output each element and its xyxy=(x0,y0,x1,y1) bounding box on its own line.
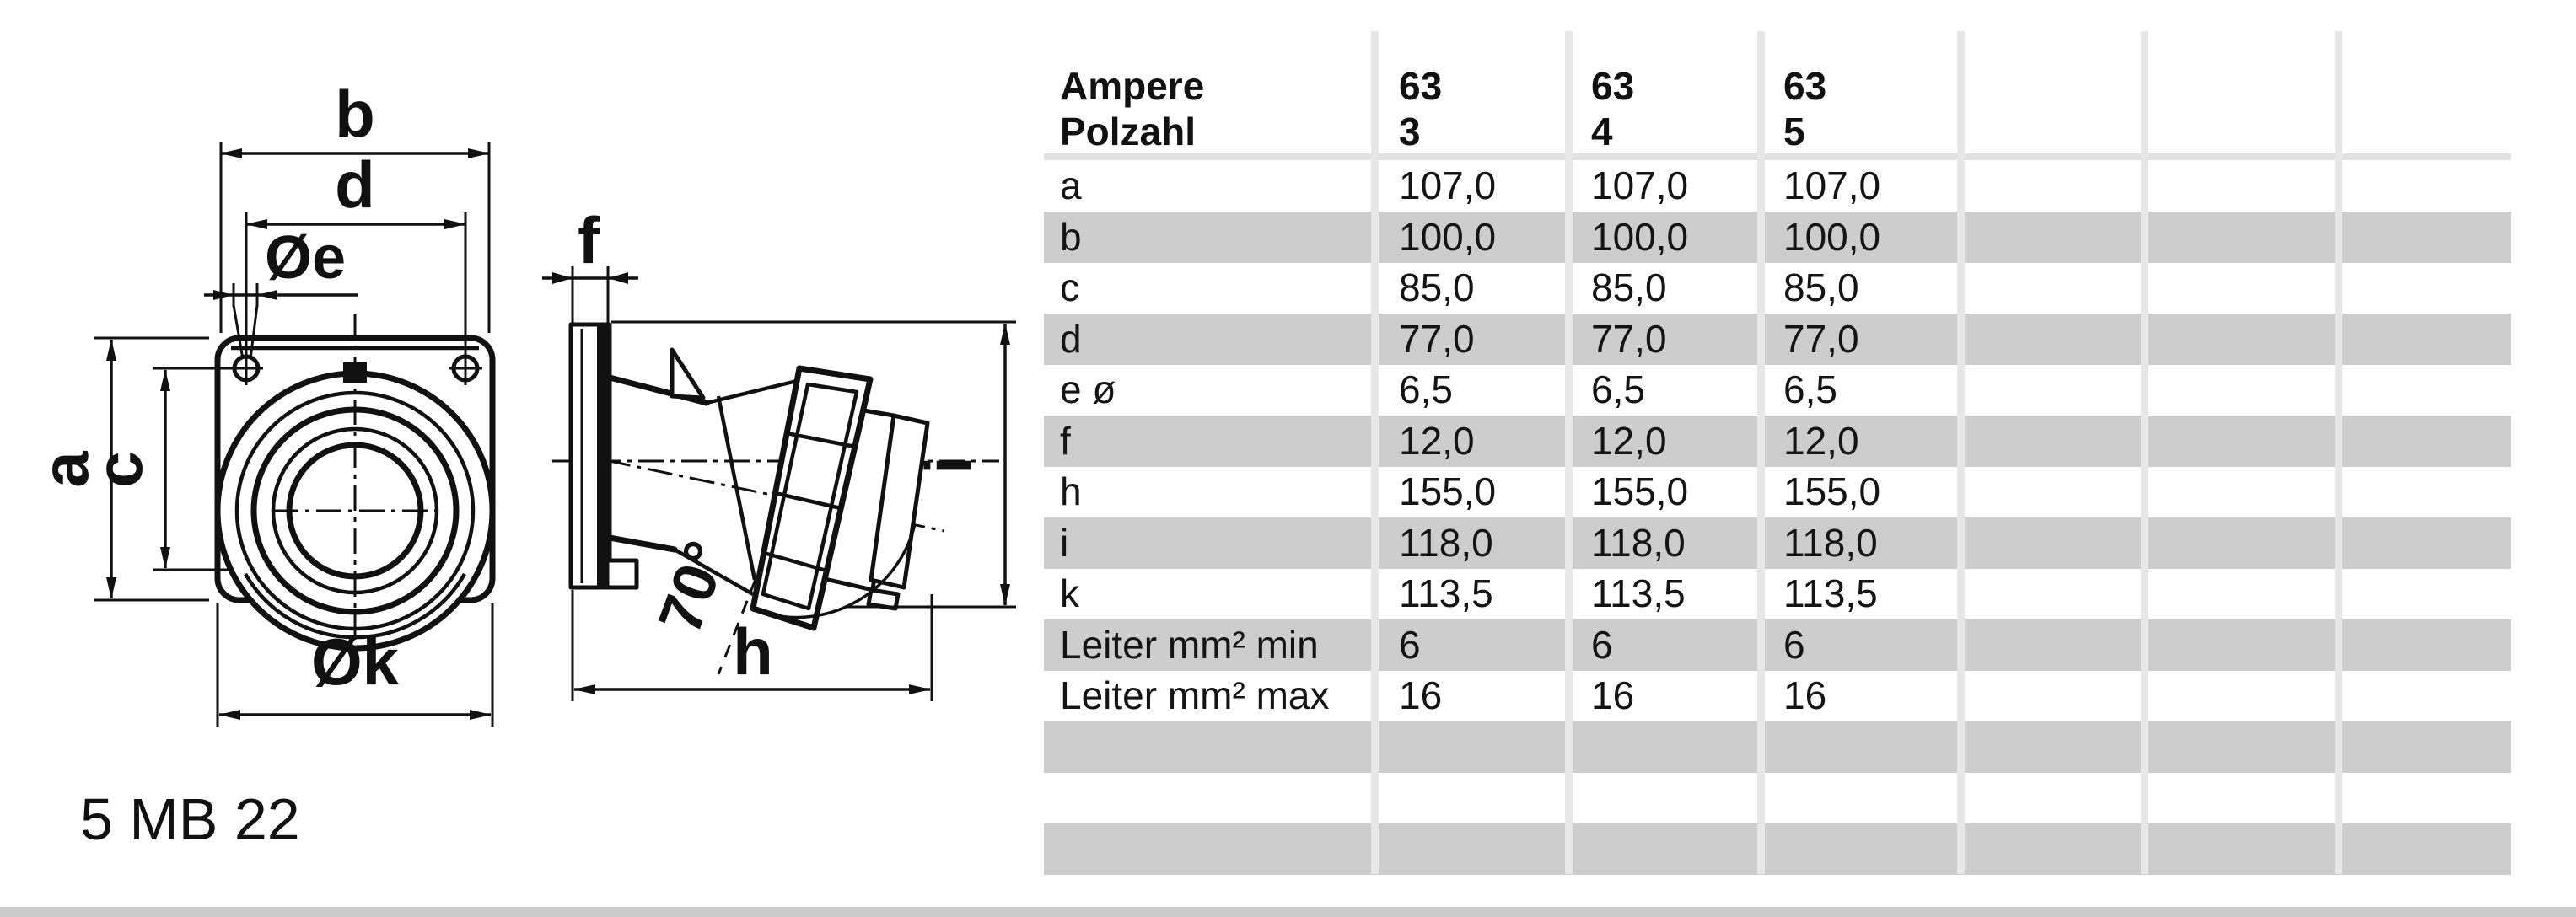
row-label: i xyxy=(1060,517,1068,569)
column-separator xyxy=(1565,31,1573,874)
table-row xyxy=(1044,160,2511,212)
row-label: c xyxy=(1060,262,1079,314)
cell-value: 100,0 xyxy=(1399,212,1496,263)
cell-value: 12,0 xyxy=(1591,416,1667,467)
footer-bar xyxy=(0,907,2576,917)
cell-value: 77,0 xyxy=(1783,314,1859,365)
table-row xyxy=(1044,212,2511,263)
cell-value: 155,0 xyxy=(1399,466,1496,517)
column-separator xyxy=(1757,31,1765,874)
cell-value: 16 xyxy=(1591,670,1634,721)
row-label: e ø xyxy=(1060,364,1116,416)
cell-value: 6,5 xyxy=(1591,364,1645,416)
cell-value: 77,0 xyxy=(1591,314,1667,365)
cell-value: 155,0 xyxy=(1783,466,1880,517)
cell-value: 113,5 xyxy=(1783,568,1878,619)
row-label: Leiter mm² min xyxy=(1060,619,1319,671)
header-ampere-value: 63 xyxy=(1399,65,1442,107)
cell-value: 85,0 xyxy=(1591,262,1667,314)
cell-value: 85,0 xyxy=(1399,262,1475,314)
cell-value: 6 xyxy=(1783,619,1805,671)
cell-value: 118,0 xyxy=(1783,517,1878,569)
row-label: b xyxy=(1060,212,1082,263)
datasheet-page: b d Øe xyxy=(0,0,2576,917)
row-label: h xyxy=(1060,466,1082,517)
dimension-table: Ampere Polzahl 633634635a107,0107,0107,0… xyxy=(0,0,2576,917)
cell-value: 118,0 xyxy=(1591,517,1686,569)
cell-value: 6,5 xyxy=(1783,364,1837,416)
cell-value: 16 xyxy=(1783,670,1826,721)
table-row xyxy=(1044,416,2511,467)
header-ampere-value: 63 xyxy=(1591,65,1634,107)
cell-value: 113,5 xyxy=(1591,568,1686,619)
table-row xyxy=(1044,466,2511,517)
table-row xyxy=(1044,314,2511,365)
cell-value: 6 xyxy=(1399,619,1421,671)
cell-value: 12,0 xyxy=(1783,416,1859,467)
cell-value: 100,0 xyxy=(1591,212,1688,263)
table-row xyxy=(1044,262,2511,314)
row-label: f xyxy=(1060,416,1071,467)
table-row xyxy=(1044,364,2511,416)
cell-value: 107,0 xyxy=(1399,160,1496,212)
column-separator xyxy=(1371,31,1379,874)
row-label: Leiter mm² max xyxy=(1060,670,1329,721)
cell-value: 16 xyxy=(1399,670,1442,721)
column-separator xyxy=(2335,31,2342,874)
header-polzahl-value: 5 xyxy=(1783,110,1805,153)
cell-value: 85,0 xyxy=(1783,262,1859,314)
row-label: k xyxy=(1060,568,1079,619)
cell-value: 6 xyxy=(1591,619,1613,671)
row-label: a xyxy=(1060,160,1082,212)
header-ampere-value: 63 xyxy=(1783,65,1826,107)
cell-value: 155,0 xyxy=(1591,466,1688,517)
table-row xyxy=(1044,568,2511,619)
cell-value: 100,0 xyxy=(1783,212,1880,263)
cell-value: 107,0 xyxy=(1591,160,1688,212)
cell-value: 113,5 xyxy=(1399,568,1493,619)
table-row xyxy=(1044,517,2511,569)
table-header-polzahl: Polzahl xyxy=(1060,110,1196,153)
cell-value: 118,0 xyxy=(1399,517,1493,569)
column-separator xyxy=(2141,31,2148,874)
column-separator xyxy=(1957,31,1965,874)
header-polzahl-value: 4 xyxy=(1591,110,1613,153)
cell-value: 77,0 xyxy=(1399,314,1475,365)
cell-value: 107,0 xyxy=(1783,160,1880,212)
table-row-empty xyxy=(1044,772,2511,823)
table-header-ampere: Ampere xyxy=(1060,65,1204,107)
row-label: d xyxy=(1060,314,1082,365)
cell-value: 6,5 xyxy=(1399,364,1453,416)
table-row-empty xyxy=(1044,823,2511,875)
header-polzahl-value: 3 xyxy=(1399,110,1421,153)
header-separator-band xyxy=(1044,153,2511,160)
table-row-empty xyxy=(1044,721,2511,773)
cell-value: 12,0 xyxy=(1399,416,1475,467)
